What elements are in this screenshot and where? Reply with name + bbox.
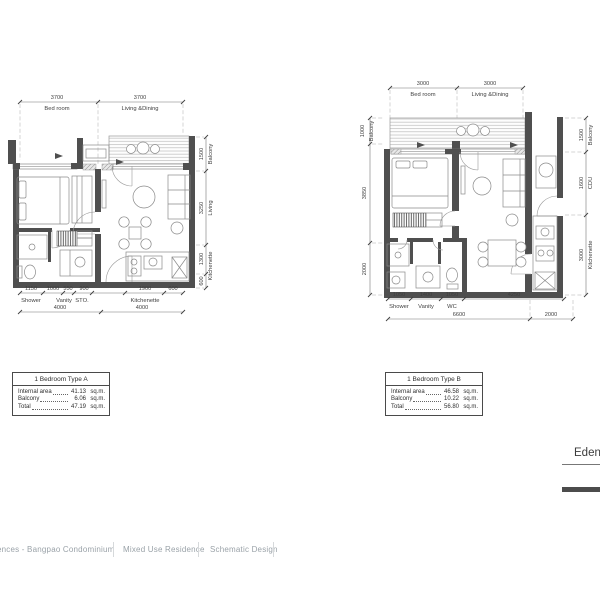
room-label: STO.: [75, 298, 89, 304]
dim-value: 1000: [47, 286, 59, 292]
unit-info-box-type-b: 1 Bedroom Type B Internal area46.58sq.m.…: [385, 372, 483, 416]
dotted-leader: [413, 401, 441, 402]
dim-value: 600: [199, 276, 205, 285]
plan-b: 3000 3000 Bed room Living &Dining: [360, 81, 594, 321]
area-value: 46.58: [442, 389, 459, 397]
plan-b-balcony: [390, 118, 525, 149]
dotted-leader: [426, 394, 441, 395]
dim-value: 3000: [579, 249, 585, 261]
dim-value: 1150: [25, 286, 37, 292]
footer-project-name: ences - Bangpao Condominium: [0, 545, 114, 554]
room-label: Bed room: [44, 106, 69, 112]
room-label: Balcony: [588, 125, 594, 146]
room-label: CDU: [588, 177, 594, 190]
plan-a-bottom-dimensions: 1150 1000 550 900 1900 600 Shower Vanity…: [18, 286, 185, 314]
drawing-sheet: 3700 3700 Bed room Living &Dining: [0, 0, 600, 600]
footer-divider: [273, 542, 274, 557]
room-label: Balcony: [369, 121, 375, 142]
dim-value: 6600: [453, 312, 465, 318]
dim-value: 3000: [417, 81, 429, 87]
dim-value: 3850: [362, 187, 368, 199]
area-unit: sq.m.: [459, 404, 478, 412]
room-label: Balcony: [208, 144, 214, 165]
dim-value: 3250: [199, 202, 205, 214]
dim-value: 1050: [446, 292, 458, 298]
area-label: Total: [18, 404, 31, 412]
dim-value: 1300: [199, 253, 205, 265]
area-row: Balcony10.22sq.m.: [391, 396, 478, 404]
dim-value: 1400: [420, 292, 432, 298]
area-label: Balcony: [391, 396, 412, 404]
area-row: Balcony6.06sq.m.: [18, 396, 105, 404]
room-label: Kitchenette: [208, 251, 214, 280]
area-row: Internal area46.58sq.m.: [391, 389, 478, 397]
area-row: Total47.19sq.m.: [18, 404, 105, 412]
plan-a-right-dimensions: 1500 Balcony 3250 Living 1300 Kitchenett…: [196, 135, 214, 290]
plan-a: 3700 3700 Bed room Living &Dining: [8, 95, 214, 314]
room-label: Shower: [21, 298, 41, 304]
area-label: Internal area: [18, 389, 52, 397]
footer-divider: [113, 542, 114, 557]
plan-b-left-dimensions: 1000 Balcony 3850 2000: [360, 116, 384, 297]
dim-value: 4250: [508, 292, 520, 298]
floor-plans-canvas: 3700 3700 Bed room Living &Dining: [0, 0, 600, 430]
area-label: Internal area: [391, 389, 425, 397]
area-unit: sq.m.: [459, 389, 478, 397]
room-label: Shower: [389, 304, 409, 310]
plan-b-right-dimensions: 1500 Balcony 1600 CDU 3000 Kitchenette: [565, 116, 594, 297]
area-value: 41.13: [69, 389, 86, 397]
area-row: Internal area41.13sq.m.: [18, 389, 105, 397]
area-row: Total56.80sq.m.: [391, 404, 478, 412]
area-value: 47.19: [69, 404, 86, 412]
project-title-label: Eden: [574, 447, 600, 459]
dim-value: 3700: [51, 95, 63, 101]
area-unit: sq.m.: [86, 396, 105, 404]
dim-value: 600: [168, 286, 177, 292]
room-label: Bed room: [410, 92, 435, 98]
area-unit: sq.m.: [86, 389, 105, 397]
dim-value: 4000: [136, 305, 148, 311]
dim-value: 1500: [579, 129, 585, 141]
dotted-leader: [405, 409, 441, 410]
area-label: Total: [391, 404, 404, 412]
area-value: 10.22: [442, 396, 459, 404]
area-value: 56.80: [442, 404, 459, 412]
area-unit: sq.m.: [86, 404, 105, 412]
room-label: Living: [208, 200, 214, 215]
dotted-leader: [40, 401, 68, 402]
project-title: Eden: [574, 447, 600, 462]
area-label: Balcony: [18, 396, 39, 404]
room-label: Vanity: [56, 298, 72, 304]
dim-value: 1600: [579, 177, 585, 189]
dim-value: 1500: [199, 148, 205, 160]
dim-value: 3000: [484, 81, 496, 87]
area-unit: sq.m.: [459, 396, 478, 404]
dim-value: 1050: [393, 292, 405, 298]
unit-type-title: 1 Bedroom Type A: [13, 373, 109, 386]
dim-value: 2000: [545, 312, 557, 318]
footer-design-phase: Schematic Design: [210, 545, 278, 554]
unit-type-title: 1 Bedroom Type B: [386, 373, 482, 386]
room-label: Living &Dining: [121, 106, 158, 112]
footer-project-type: Mixed Use Residence: [123, 545, 205, 554]
footer-divider: [198, 542, 199, 557]
dim-value: 4000: [54, 305, 66, 311]
dim-value: 550: [63, 286, 72, 292]
room-label: Living &Dining: [471, 92, 508, 98]
dim-value: 1900: [139, 286, 151, 292]
unit-info-box-type-a: 1 Bedroom Type A Internal area41.13sq.m.…: [12, 372, 110, 416]
title-block-bar: [562, 487, 600, 492]
dotted-leader: [53, 394, 68, 395]
room-label: WC: [447, 304, 457, 310]
room-label: Vanity: [418, 304, 434, 310]
room-label: Kitchenette: [130, 298, 159, 304]
room-label: Kitchenette: [588, 240, 594, 269]
dim-value: 2000: [362, 263, 368, 275]
title-underline: [562, 464, 600, 465]
plan-a-furniture: [17, 153, 190, 281]
dim-value: 900: [79, 286, 88, 292]
dim-value: 3700: [134, 95, 146, 101]
area-value: 6.06: [69, 396, 86, 404]
dim-value: 1000: [360, 125, 366, 137]
dotted-leader: [32, 409, 68, 410]
